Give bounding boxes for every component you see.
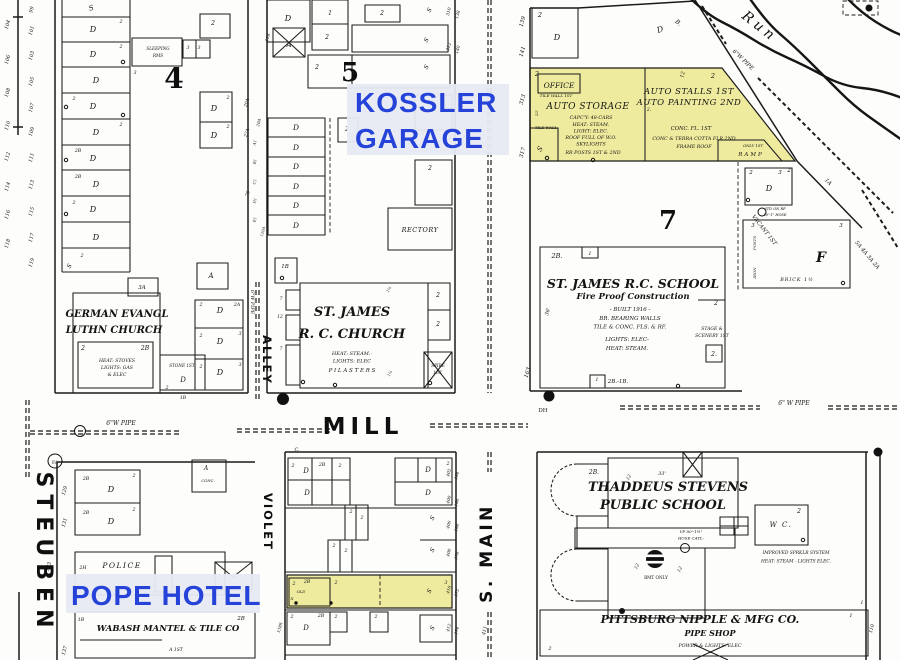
map-annotation: CAPC'Y: 48-CARS [570,115,614,121]
map-annotation: 312 [445,42,453,52]
street-label-violet: VIOLET [261,493,275,551]
map-annotation: D [302,624,309,632]
map-annotation: PIPE SHOP [684,628,737,638]
map-annotation: 2 [225,95,229,101]
map-annotation: HEAT: STOVES [98,358,135,364]
map-annotation: 7 [280,346,283,352]
kossler-label-line2[interactable]: GARAGE [355,123,484,154]
stream-label-run: Run [738,7,781,45]
basement-symbol [646,550,664,568]
map-annotation: 2 [786,168,791,174]
auto-stalls-label: AUTO STALLS 1ST [643,87,735,97]
map-annotation: 2 [379,10,384,17]
pipe-label-ne: 6"W PIPE [731,49,755,72]
map-annotation: 2. [710,351,717,358]
map-annotation: HEAT: STEAM. [572,122,610,128]
map-annotation: HOSE CATL- [677,536,705,541]
map-annotation: TILE WALL [535,125,558,130]
map-annotation: 12 [676,565,684,573]
map-annotation: 3 [186,45,189,51]
map-annotation: 2 [748,170,753,176]
map-annotation: 119 [28,257,36,269]
map-annotation: P I L A S T E R S [328,368,376,374]
map-annotation: D [292,221,299,230]
map-annotation: 2 [445,461,449,467]
map-annotation: 2 [337,463,341,469]
map-annotation: 131 [61,517,69,528]
map-annotation: 2 [324,34,329,41]
map-annotation: C1 [251,178,257,184]
map-annotation: 411 [481,626,489,637]
map-annotation: D [89,205,97,214]
map-annotation: D [89,102,97,111]
map-annotation: D [92,76,100,85]
map-annotation: 101 [28,25,36,36]
map-annotation: 2 [118,122,122,128]
hydrant-dot [544,391,555,402]
map-annotation: 2 [198,364,202,370]
map-annotation: 1 [328,10,332,17]
map-annotation: 1 [595,377,598,383]
pope-label-text[interactable]: POPE HOTEL [71,580,261,611]
map-annotation: 2B [303,579,311,585]
map-annotation: 2 [289,614,293,620]
map-annotation: S [423,37,431,44]
map-annotation: BMT ONLY [644,575,668,580]
hydrant-dot [277,393,289,405]
map-annotation: 5A 4A 3A 2A [853,240,880,271]
map-annotation: 112 [4,151,12,162]
map-annotation: IRON [752,267,757,280]
map-annotation: 3 [133,70,136,76]
map-annotation: ONLY 1ST [743,143,763,148]
pipe-label-west: 6"W PIPE [106,420,136,427]
map-annotation: D [92,180,100,189]
map-annotation: 2 [343,548,347,554]
map-annotation: 313 [519,93,528,105]
map-annotation: 2 [210,20,215,27]
map-annotation: E1 [251,216,257,223]
map-annotation: 118 [4,238,12,249]
map-annotation: 1½ [385,285,393,293]
map-annotation: S [429,515,437,522]
map-annotation: D [92,233,100,242]
map-annotation: BRICK 1½ [779,276,814,283]
block-number-7: 7 [659,206,677,236]
map-annotation: 2B [236,616,245,622]
map-annotation: 2H [78,565,87,571]
fire-alarm-box: FA [52,460,59,466]
map-annotation: 107 [28,102,36,114]
street-label-mill: MILL [323,414,404,440]
map-annotation: 310 [445,7,453,17]
map-annotation: 2 [547,646,551,652]
map-annotation: D [302,467,309,475]
map-annotation: 106 [4,54,12,66]
map-annotation: S [423,64,431,71]
map-annotation: 2 [314,64,319,71]
map-annotation: 138R [276,622,284,634]
map-annotation: 2B [74,174,82,180]
map-annotation: LIGHTS: ELEC- [604,337,649,343]
map-annotation: R. C. CHURCH [298,327,406,342]
map-annotation: SCENERY 1ST [695,333,730,339]
map-annotation: 168 [453,523,460,532]
map-annotation: D [107,485,115,494]
map-annotation: S [66,263,74,270]
st-james-church-label: ST. JAMES [314,305,390,320]
map-annotation: 2 [713,300,718,307]
map-annotation: 2 [131,507,135,513]
map-annotation: 2B [82,510,90,516]
map-annotation: HEAT: STEAM. [605,346,649,352]
map-annotation: TILE & CONC. FLS. & RF. [594,325,667,331]
pope-hotel-annotation[interactable]: POPE HOTEL [66,574,261,613]
map-annotation: C. [294,447,299,453]
map-annotation: A [285,41,291,49]
map-screenshot: MILL STEUBEN S. MAIN ALLEY VIOLET Run 4 … [0,0,900,660]
map-annotation: 2 [435,292,440,299]
map-annotation: D [292,162,299,171]
stream-line [845,0,900,36]
map-annotation: FRAME ROOF [675,144,712,150]
map-annotation: D [292,123,299,132]
map-annotation: SPIRE [431,363,445,368]
map-annotation: 2 [796,508,801,515]
map-annotation: D [424,489,431,497]
map-annotation: D [210,104,218,113]
map-annotation: 116 [4,209,12,221]
hydrant-dot [866,5,873,12]
map-annotation: PUBLIC SCHOOL [599,498,726,513]
kossler-label-line1[interactable]: KOSSLER [355,87,497,118]
map-annotation: 2B. [588,469,599,476]
map-annotation: 139 [519,15,528,27]
map-annotation: 137 [61,645,69,657]
map-annotation: 2B [140,345,150,352]
map-annotation: B. [673,17,683,27]
map-annotation: 110 [4,120,12,132]
map-annotation: 2B [82,476,90,482]
map-annotation: 113 [28,179,36,190]
map-annotation: 2 [331,543,335,549]
map-annotation: 120A [259,226,266,237]
kossler-garage-annotation[interactable]: KOSSLER GARAGE [347,84,509,155]
map-annotation: 110 [868,624,876,634]
map-annotation: 3 [238,362,241,368]
map-annotation: ROOF FULL OF W.O. [564,135,617,141]
map-annotation: 163 [524,366,533,378]
map-annotation: 1. [647,100,652,106]
map-annotation: CONC. [201,478,214,483]
map-annotation: 2 [291,581,295,587]
map-annotation: 2 [80,345,85,352]
map-annotation: 20A [243,97,252,109]
map-annotation: D [89,50,97,59]
map-annotation: VP 80'-1½" [680,529,703,534]
rectory-label: RECTORY [401,226,439,234]
map-annotation: DH [538,408,547,414]
map-annotation: 2A [233,302,241,308]
map-annotation: D [303,489,310,497]
map-annotation: 2 [198,302,202,308]
map-annotation: 2 [373,614,377,620]
map-annotation: TILE WALL 1ST [540,93,573,98]
map-annotation: 174 [453,626,460,635]
st-james-school-label: ST. JAMES R.C. SCHOOL [547,276,720,291]
map-annotation: 172 [453,588,460,597]
map-annotation: 117 [28,232,36,244]
map-annotation: RR POSTS 1ST & 2ND [564,150,620,156]
block-number-4: 4 [164,62,183,95]
map-annotation: 2 [710,72,715,80]
map-annotation: 2 [359,515,363,521]
map-annotation: D [89,154,97,163]
map-annotation: 163' [433,370,442,375]
map-annotation: 2 [435,321,440,328]
map-annotation: W C. [770,521,793,529]
map-annotation: 317 [519,146,528,158]
german-church-label: GERMAN EVANGL [66,309,169,320]
map-annotation: 2 [333,614,337,620]
map-annotation: 164 [453,471,460,480]
map-annotation: CONC. FL. 1ST [671,126,712,132]
map-annotation: 3A [138,285,145,291]
map-annotation: D [107,517,115,526]
map-annotation: 36' [544,307,552,316]
street-label-steuben: STEUBEN [31,472,56,635]
police-label: POLICE [101,561,141,570]
map-annotation: HEAT: STEAM.- [331,351,373,357]
map-annotation: 129 [61,485,69,497]
map-annotation: IMPROVED SPRKLR SYSTEM [761,551,830,556]
map-annotation: RAMP [737,152,763,158]
map-annotation: CONC & TERRA COTTA FLR 2ND [652,136,735,142]
map-annotation: 7 [280,296,283,302]
map-annotation: A [207,272,213,280]
map-annotation: D [216,337,224,346]
map-annotation: 23' [534,110,539,117]
map-annotation: 1B [78,617,85,623]
pipe-label-east: 6" W PIPE [778,400,810,407]
hydrant-dot [874,448,883,457]
map-annotation: D [553,33,561,42]
map-annotation: 3 [778,170,782,176]
map-annotation: - BUILT 1916 - [610,307,651,313]
map-annotation: D [292,143,299,152]
map-annotation: BR. BEARING WALLS [598,316,661,322]
map-annotation: 103 [28,50,36,61]
map-annotation: 412 [445,623,452,633]
map-annotation: 2 [198,333,202,339]
map-annotation: POSTS [752,236,757,251]
map-annotation: D1 [251,197,258,205]
map-annotation: STONE 1ST [169,363,196,368]
map-annotation: 2. [646,107,652,113]
map-annotation: D [179,376,186,384]
map-annotation: 2B [317,613,325,619]
map-annotation: S [429,547,437,554]
map-annotation: STAGE & [701,326,722,332]
map-annotation: 406 [445,520,452,530]
block-number-5: 5 [341,58,359,88]
map-annotation: 1B [180,395,187,401]
map-annotation: STD ON RF [764,207,786,211]
map-annotation: 75 [244,190,251,197]
map-annotation: 3 [197,45,200,51]
map-annotation: 105 [28,76,36,87]
map-annotation: 1 [588,251,591,257]
wabash-label: WABASH MANTEL & TILE CO [97,624,240,634]
map-annotation: OFFICE [544,81,575,90]
map-annotation: & ELEC [108,372,127,378]
map-annotation: B1 [251,158,257,165]
map-annotation: 1 [860,600,863,606]
map-annotation: S [426,7,434,14]
map-annotation: D [424,466,431,474]
map-annotation: 1B [281,264,289,270]
map-annotation: 114 [4,181,12,192]
map-annotation: 2B [318,462,326,468]
map-annotation: 2 [71,200,75,206]
auto-storage-label: AUTO STORAGE [546,102,630,112]
map-annotation: 12 [277,314,283,320]
map-annotation: D [216,306,224,315]
map-annotation: LIGHTS: ELEC [332,359,371,365]
map-annotation: POWER & LIGHTS: ELEC [677,643,741,649]
map-annotation: 170 [453,551,460,560]
map-annotation: 2 [164,385,168,391]
map-annotation: A [203,465,209,472]
map-annotation: D [284,14,292,23]
map-annotation: OLD [297,589,306,594]
map-annotation: LIGHT: ELEC. [573,129,609,135]
map-annotation: 20A [255,118,262,128]
map-annotation: 3 [238,331,241,337]
map-annotation: 2 [290,463,294,469]
map-annotation: 2 [71,96,75,102]
map-annotation: 2 [79,253,83,259]
map-annotation: 408 [445,548,452,558]
map-annotation: 2 [534,70,539,78]
map-annotation: X [290,596,294,601]
map-annotation: 400 [445,495,452,505]
map-annotation: D [655,24,666,35]
map-annotation: S [88,3,95,12]
map-annotation: 2 [118,19,122,25]
map-annotation: 402 [445,468,452,478]
map-annotation: RMS [152,53,163,58]
map-annotation: 118 [264,33,272,43]
map-annotation: D [89,25,97,34]
pittsburg-label: PITTSBURG NIPPLE & MFG CO. [600,613,800,626]
map-annotation: 2 [537,11,542,19]
map-annotation: 12 [633,562,641,570]
map-annotation: 109 [28,126,36,138]
map-annotation: D [292,201,299,210]
map-annotation: 2 [348,509,352,515]
map-annotation: F [815,250,827,266]
map-annotation: SKYLIGHTS [576,142,606,148]
map-annotation: D [210,131,218,140]
map-annotation: 2 [131,473,135,479]
map-annotation: 104 [4,19,12,30]
map-annotation: 111 [28,152,36,163]
map-annotation: D [216,368,224,377]
map-annotation: 22A [243,127,252,139]
map-annotation: 166 [453,498,460,507]
street-label-alley: ALLEY [260,335,274,385]
map-annotation: 3 [839,223,843,229]
map-annotation: S [429,625,437,632]
map-annotation: 2 [333,580,337,586]
map-annotation: D [765,184,773,193]
map-annotation: 2 [427,165,432,172]
street-label-s-main: S. MAIN [477,503,497,603]
map-annotation: 2B [74,148,82,154]
map-annotation: 141 [519,46,528,58]
map-annotation: SLEEPING [146,46,170,51]
map-annotation: 2 [118,44,122,50]
map-annotation: 50'-1" HOSE [763,213,786,217]
map-annotation: Fire Proof Construction [575,292,689,302]
map-annotation: D [292,182,299,191]
map-annotation: 33' [658,471,666,477]
map-annotation: 2B. [551,252,563,260]
map-annotation: A1 [251,139,257,146]
map-annotation: 99 [28,5,36,13]
map-annotation: LUTHN CHURCH [65,325,163,336]
map-annotation: 2 [225,124,229,130]
map-annotation: HEAT: STEAM - LIGHTS ELEC. [760,560,831,565]
map-annotation: 3 [751,223,755,229]
map-annotation: LIGHTS: GAS [100,365,133,371]
map-annotation: 1½ [386,369,394,377]
sanborn-map-canvas: MILL STEUBEN S. MAIN ALLEY VIOLET Run 4 … [0,0,900,660]
pipe-label-alley: 6"W PIPE [249,290,255,315]
map-annotation: D [92,128,100,137]
map-annotation: 108 [4,87,12,98]
thaddeus-label: THADDEUS STEVENS [588,480,748,495]
map-annotation: AUTO PAINTING 2ND [636,98,742,108]
map-annotation: 1 [849,613,852,619]
map-annotation: 2B.-1B. [607,379,629,385]
map-annotation: 1A [823,178,833,188]
map-annotation: 115 [28,206,36,217]
map-annotation: A 1ST [168,647,184,653]
